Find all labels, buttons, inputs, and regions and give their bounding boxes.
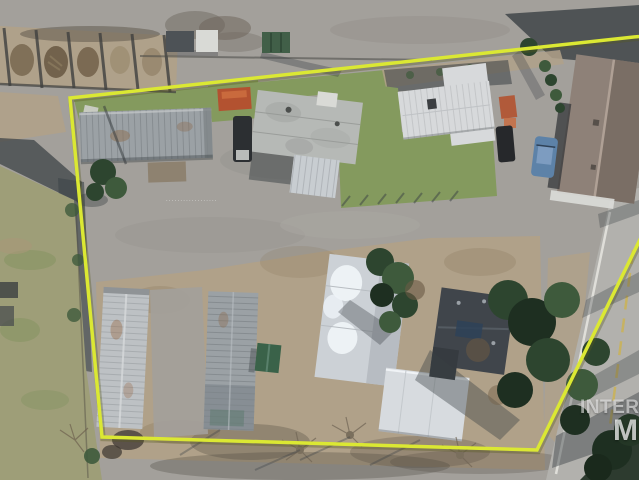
bush — [406, 71, 414, 79]
material-pile — [142, 48, 162, 76]
dirt-texture — [444, 248, 516, 276]
roof-vent-dark — [427, 98, 437, 109]
dark-shed — [166, 31, 194, 52]
material-pile — [10, 44, 34, 76]
evergreen-canopy — [544, 282, 580, 318]
rooftop-box — [316, 91, 338, 107]
aerial-photo: ·················· INTERMOUNTAIN MLS — [0, 0, 639, 480]
debris-object — [0, 282, 18, 298]
watermark-line2: MLS — [613, 416, 639, 446]
orange-equipment — [499, 95, 518, 119]
conifer-canopy — [105, 177, 127, 199]
blue-car-roof — [536, 145, 553, 165]
dark-van — [233, 116, 252, 162]
bare-tree-crown — [456, 451, 464, 459]
material-pile — [77, 47, 99, 77]
bush — [555, 103, 565, 113]
pavement-patch — [330, 16, 510, 44]
bare-tree-canopy — [466, 338, 490, 362]
evergreen-canopy — [526, 338, 570, 382]
ribbed-annex-ribs — [289, 155, 339, 198]
bays-back-shadow — [20, 26, 160, 42]
conifer-canopy — [86, 183, 104, 201]
parcel-label-text: ·················· — [166, 198, 218, 204]
bare-tree-canopy — [405, 280, 425, 300]
white-shed — [196, 30, 218, 52]
bush — [72, 254, 84, 266]
pavement-patch — [115, 217, 305, 253]
blue-car — [531, 136, 559, 179]
orange-dumpster — [217, 87, 251, 111]
roof-teal-patch — [210, 409, 245, 426]
evergreen-canopy — [497, 372, 533, 408]
bush — [65, 203, 79, 217]
tree-canopy — [370, 283, 394, 307]
tree-canopy — [379, 311, 401, 333]
ground-shadow — [390, 450, 570, 474]
green-dumpster — [262, 32, 290, 53]
bush — [67, 308, 81, 322]
drive-between-trailers — [150, 287, 208, 438]
yard-debris — [102, 445, 122, 459]
dark-van-hood — [236, 150, 249, 160]
chimney — [590, 164, 596, 170]
small-conifer — [84, 448, 100, 464]
grass-texture — [21, 390, 69, 410]
trailer-north — [79, 108, 213, 165]
debris-object — [0, 306, 14, 326]
bush — [545, 74, 557, 86]
pavement-patch-light — [280, 211, 420, 239]
bush — [550, 89, 562, 101]
trailer-north-ribs — [79, 108, 213, 163]
material-pile — [110, 46, 130, 74]
chimney — [593, 119, 600, 126]
dark-suv — [495, 125, 515, 162]
bush — [539, 60, 551, 72]
orange-dumpster-body — [217, 87, 251, 111]
trailer-west-long — [96, 287, 149, 429]
trailer-north-deck — [148, 161, 187, 182]
aerial-photo-canvas: ·················· — [0, 0, 639, 480]
